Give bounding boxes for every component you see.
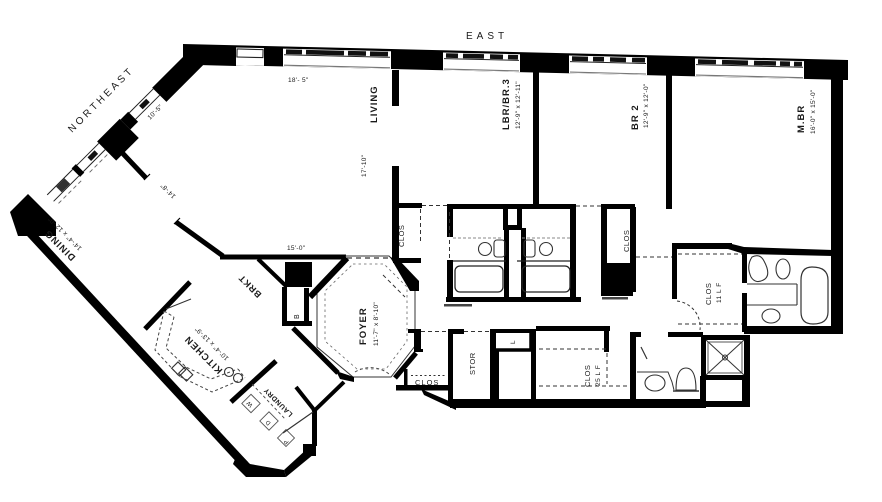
svg-text:12'-9" x 12'-11": 12'-9" x 12'-11" [515, 81, 522, 129]
svg-text:STOR: STOR [468, 352, 477, 375]
svg-text:CLOS: CLOS [704, 283, 713, 305]
svg-text:CLOS: CLOS [397, 225, 406, 247]
svg-text:25 L F: 25 L F [595, 365, 602, 386]
svg-text:M.BR: M.BR [796, 105, 807, 133]
svg-text:L: L [510, 340, 517, 344]
svg-text:17'-10": 17'-10" [361, 154, 368, 177]
svg-text:LIVING: LIVING [369, 85, 380, 123]
svg-text:12'-9" x 12'-0": 12'-9" x 12'-0" [643, 83, 650, 128]
svg-text:EAST: EAST [466, 31, 508, 42]
svg-text:15'-0": 15'-0" [287, 245, 306, 252]
svg-text:11 L F: 11 L F [716, 282, 723, 303]
svg-text:BR 2: BR 2 [630, 104, 641, 130]
svg-text:B: B [294, 314, 301, 319]
svg-text:11'-7" x 8'-10": 11'-7" x 8'-10" [373, 302, 380, 346]
svg-text:FOYER: FOYER [358, 307, 369, 345]
svg-text:LBR/BR.3: LBR/BR.3 [501, 78, 512, 130]
svg-text:16'-0" x 15'-0": 16'-0" x 15'-0" [810, 89, 817, 134]
svg-text:CLOS: CLOS [583, 365, 592, 387]
svg-text:CLOS: CLOS [622, 230, 631, 252]
svg-text:CLOS: CLOS [415, 378, 439, 387]
svg-text:18'- 5": 18'- 5" [288, 77, 309, 84]
